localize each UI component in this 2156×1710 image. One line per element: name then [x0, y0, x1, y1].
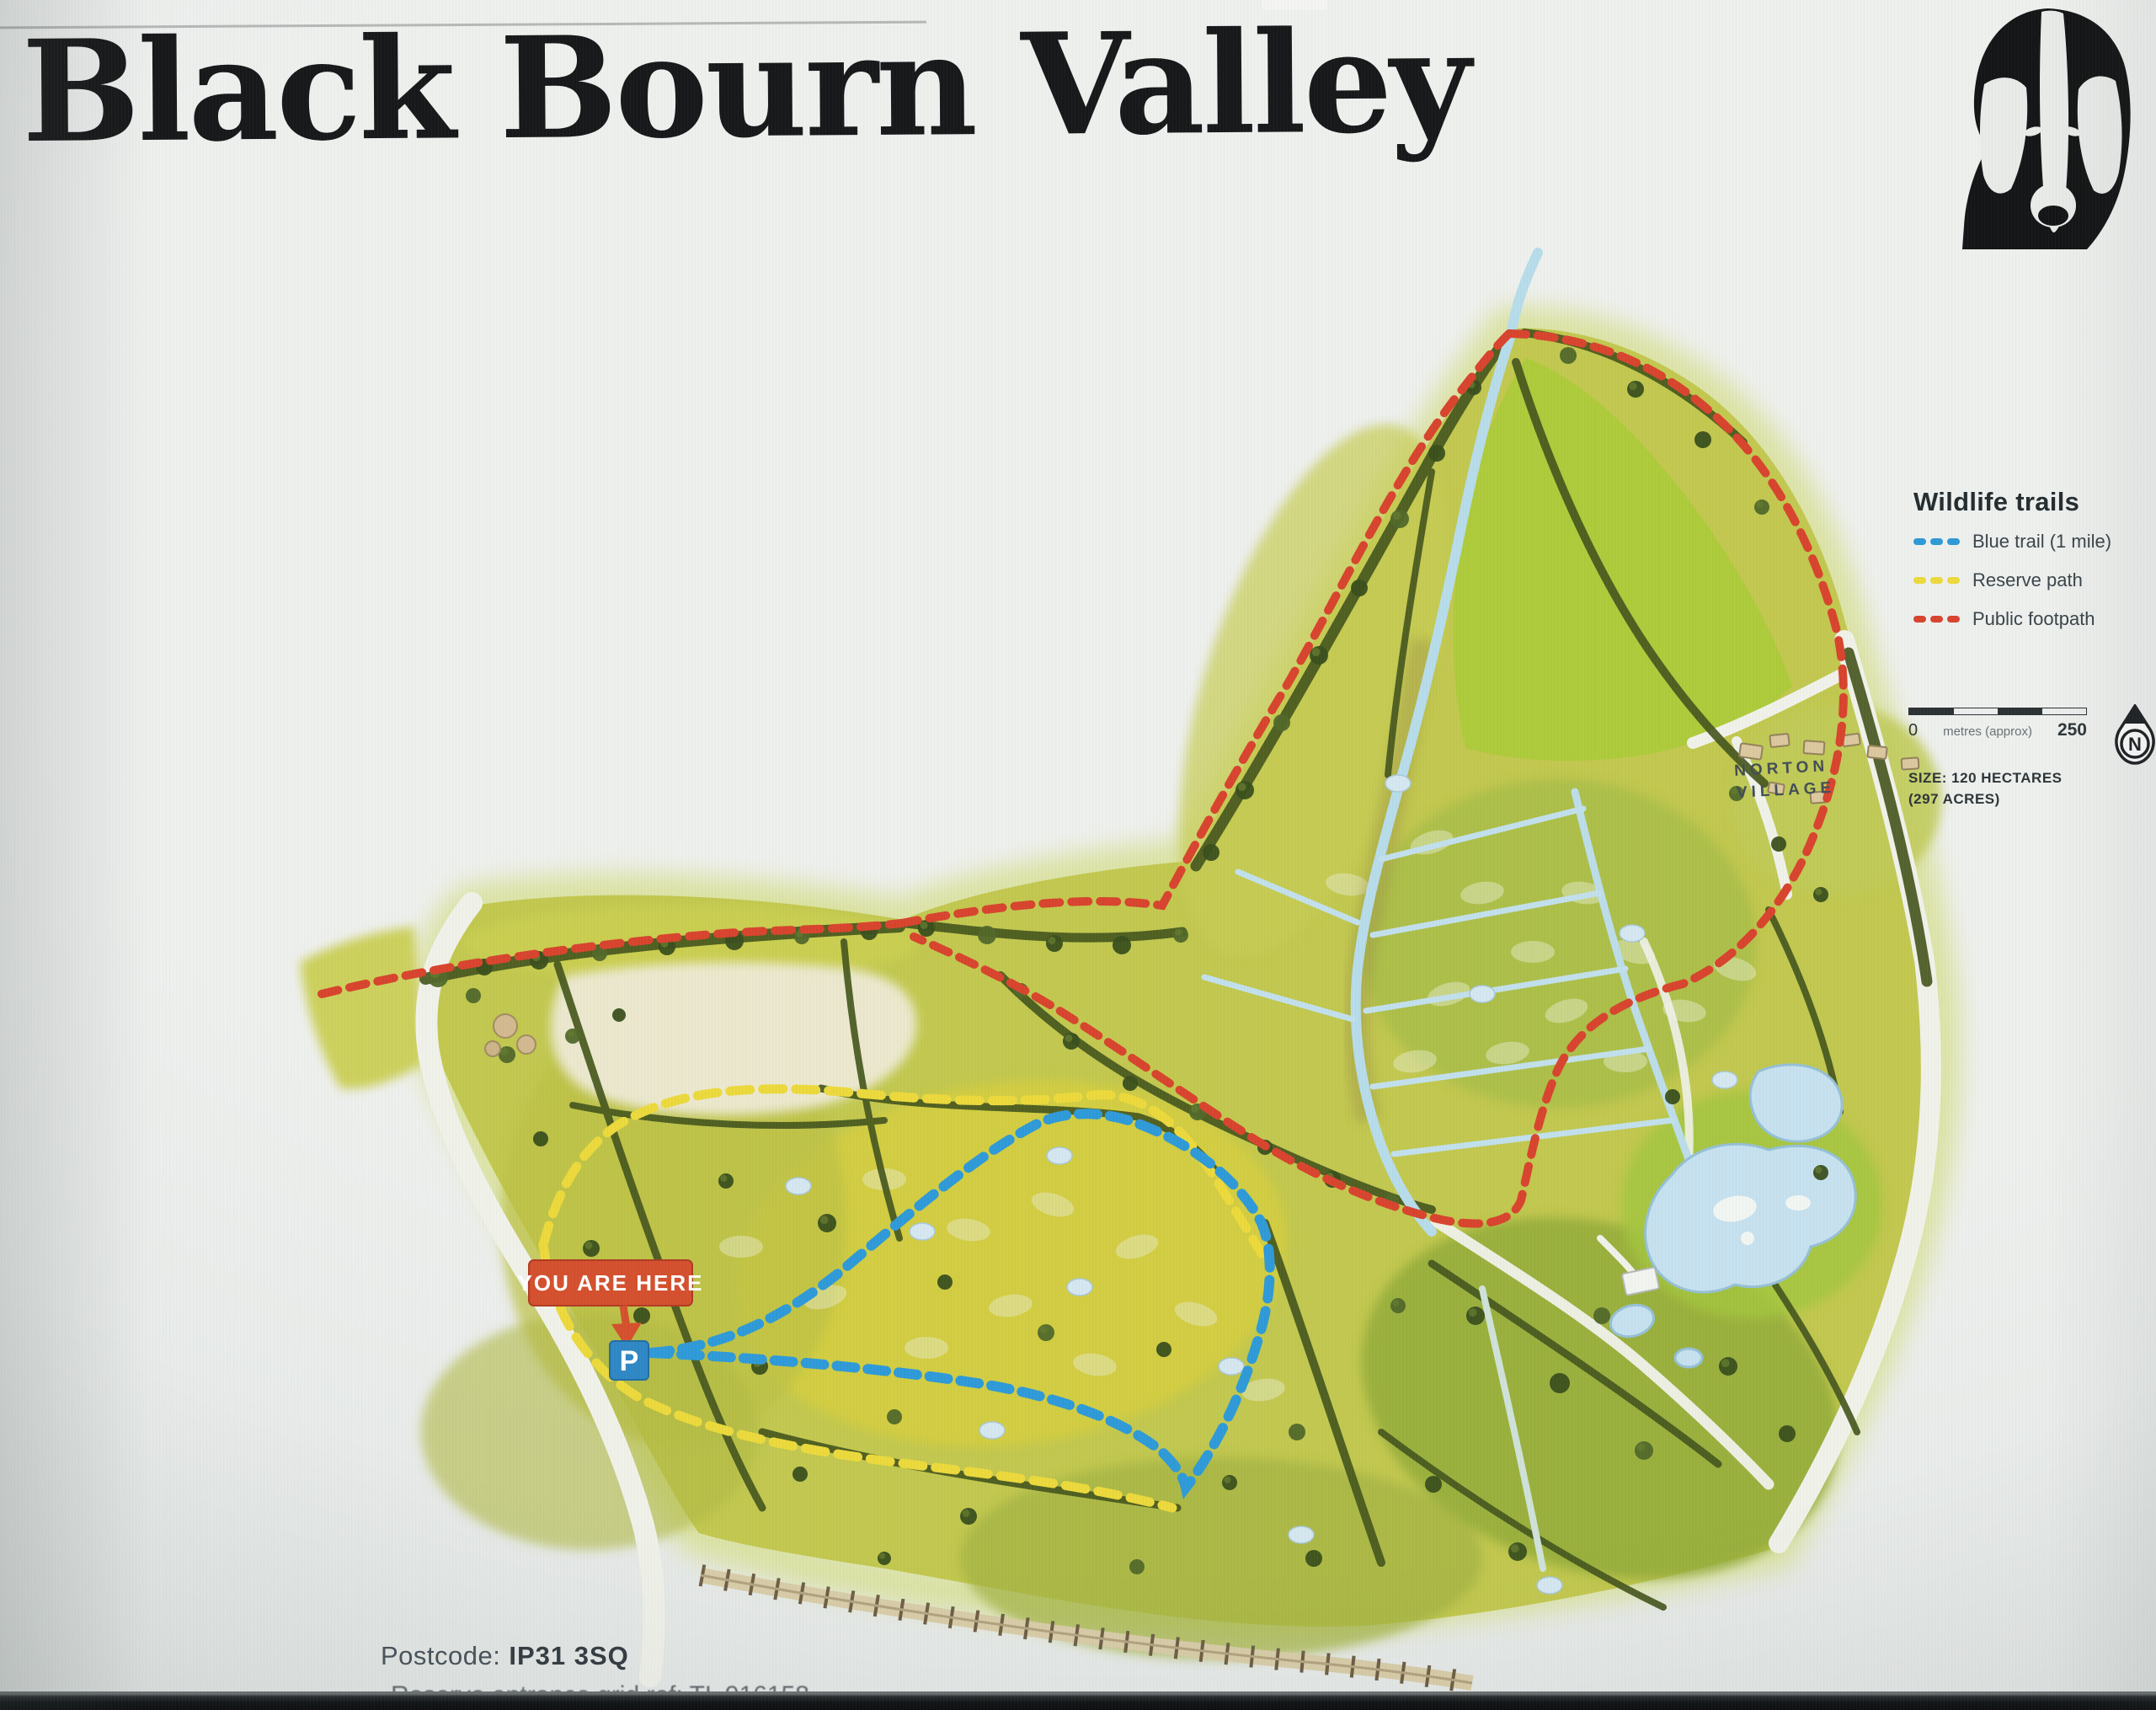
badger-icon [1959, 3, 2137, 249]
legend-item-label: Blue trail (1 mile) [1972, 531, 2111, 553]
postcode-value: IP31 3SQ [509, 1641, 628, 1670]
scale-bar: 0 metres (approx) 250 [1908, 708, 2087, 740]
size-note-line2: (297 ACRES) [1908, 789, 2063, 810]
size-note: SIZE: 120 HECTARES (297 ACRES) [1908, 768, 2063, 810]
svg-text:N: N [2128, 734, 2142, 755]
legend-item: Public footpath [1913, 608, 2149, 630]
map-sign-photo: NORTON VILLAGE YOU ARE HERE P Black Bour… [0, 0, 2156, 1710]
scale-start: 0 [1908, 721, 1918, 740]
parking-icon: P [620, 1345, 639, 1377]
you-are-here-label: YOU ARE HERE [518, 1270, 704, 1296]
parking-marker: P [610, 1341, 648, 1380]
reserve-path-swatch-icon [1913, 577, 1966, 584]
reserve-map-illustration: NORTON VILLAGE YOU ARE HERE P [0, 0, 2156, 1710]
legend-item-label: Public footpath [1972, 608, 2095, 630]
legend-title: Wildlife trails [1913, 487, 2149, 517]
public-footpath-swatch-icon [1913, 616, 1966, 623]
legend: Wildlife trails Blue trail (1 mile) Rese… [1913, 487, 2149, 647]
footer-postcode: Postcode:IP31 3SQ [381, 1641, 629, 1671]
scale-bar-rule [1908, 708, 2087, 715]
legend-item: Reserve path [1913, 569, 2149, 591]
postcode-label: Postcode: [381, 1641, 500, 1670]
size-note-line1: SIZE: 120 HECTARES [1908, 768, 2063, 789]
scale-unit: metres (approx) [1943, 724, 2032, 739]
compass-icon: N [2111, 704, 2156, 765]
page-title: Black Bourn Valley [21, 0, 1469, 174]
blue-trail-swatch-icon [1913, 538, 1966, 545]
photo-edge-strip [0, 1691, 2156, 1710]
scale-end: 250 [2057, 720, 2087, 740]
legend-item: Blue trail (1 mile) [1913, 531, 2149, 553]
legend-item-label: Reserve path [1972, 569, 2083, 591]
west-fringe-field [300, 927, 424, 1089]
